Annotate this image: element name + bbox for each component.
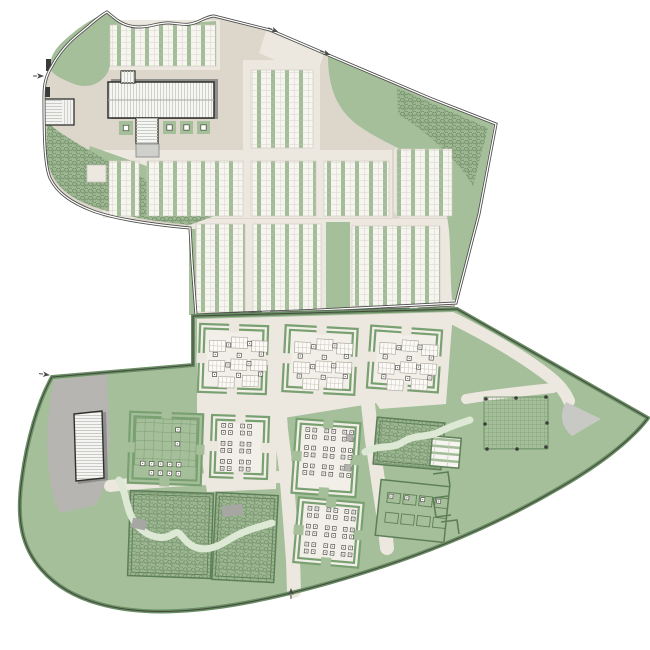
wall-opening-south bbox=[159, 476, 169, 486]
court-c2 bbox=[289, 416, 363, 500]
court-n-interior bbox=[282, 325, 357, 395]
plot-block-small-interior bbox=[430, 436, 462, 468]
tree-dot bbox=[485, 447, 489, 451]
court-c1 bbox=[207, 412, 271, 481]
plot-block-small bbox=[430, 436, 462, 468]
gate-arrow-west-lower bbox=[39, 371, 51, 378]
burial-plot-rows-block bbox=[251, 161, 316, 216]
green-band bbox=[326, 222, 350, 312]
gate-arrow-west-lower-head bbox=[43, 371, 51, 377]
wall-opening-south bbox=[233, 470, 243, 480]
wall-opening-north bbox=[235, 413, 245, 423]
chapel-wing-stairs bbox=[136, 118, 158, 144]
wall-opening-west bbox=[196, 353, 206, 363]
wall-opening-south bbox=[318, 487, 329, 498]
tree-grid-square bbox=[484, 397, 548, 449]
burial-plot-rows-block bbox=[109, 161, 139, 216]
gray-plinth bbox=[344, 464, 351, 471]
barn-roof-hatch bbox=[74, 411, 104, 481]
site-plan-page bbox=[0, 0, 650, 650]
wall-opening-west bbox=[293, 524, 304, 535]
court-grid bbox=[125, 409, 206, 488]
wall-opening-north bbox=[229, 322, 239, 332]
tree-symbol bbox=[184, 125, 189, 130]
chapel-apron bbox=[136, 144, 159, 157]
gray-plinth bbox=[346, 434, 353, 441]
tree-dot bbox=[484, 397, 488, 401]
burial-plot-rows-block bbox=[324, 161, 389, 216]
burial-plot-rows-block bbox=[110, 25, 216, 66]
court-nw bbox=[195, 321, 271, 397]
hedge-block-s bbox=[212, 492, 278, 582]
wall-opening-north bbox=[316, 324, 327, 335]
wall-opening-north bbox=[326, 497, 337, 508]
wall-opening-east bbox=[353, 530, 364, 541]
burial-plot-rows-block bbox=[196, 224, 245, 312]
tree-dot bbox=[514, 396, 518, 400]
wall-opening-west bbox=[291, 451, 302, 462]
burial-plot-rows-block bbox=[147, 161, 243, 216]
burial-plot-rows-block bbox=[352, 226, 440, 306]
wall-opening-west bbox=[208, 441, 218, 451]
gate-arrow-west-upper-head bbox=[37, 73, 44, 78]
tree-dot bbox=[483, 422, 487, 426]
site-plan-drawing bbox=[0, 0, 650, 650]
court-plots bbox=[375, 480, 449, 543]
court-ne bbox=[364, 323, 444, 395]
burial-plot-rows-block bbox=[253, 224, 321, 312]
wall-opening-west bbox=[366, 351, 377, 362]
stream-culvert-mid bbox=[222, 504, 244, 517]
wall-opening-west bbox=[281, 353, 292, 364]
hedge-block-s-interior bbox=[212, 492, 278, 582]
tree-symbol bbox=[167, 125, 172, 130]
tree-symbol bbox=[123, 125, 128, 130]
court-n bbox=[280, 323, 361, 398]
court-plots-interior bbox=[375, 480, 449, 543]
gatehouse-steps bbox=[45, 100, 62, 124]
tree-dot bbox=[544, 445, 548, 449]
court-s bbox=[291, 495, 367, 571]
tree-dot bbox=[544, 395, 548, 399]
gate-arrow-west-lower-stem bbox=[39, 374, 43, 375]
tree-dot bbox=[545, 421, 549, 425]
wall-opening-south bbox=[320, 557, 331, 568]
tree-dot bbox=[515, 447, 519, 451]
wall-opening-east bbox=[260, 443, 270, 453]
wall-opening-north bbox=[401, 325, 412, 336]
gatehouse-roof bbox=[62, 100, 73, 124]
wall-opening-north bbox=[323, 418, 334, 429]
pergola-grid bbox=[134, 418, 197, 467]
tree-symbol bbox=[201, 125, 206, 130]
chapel-annex-hatch bbox=[121, 71, 135, 83]
burial-plot-rows-block bbox=[397, 149, 452, 216]
burial-plot-rows-block bbox=[251, 70, 313, 148]
terrace-platform bbox=[87, 165, 106, 182]
gate-arrow-west-upper bbox=[33, 73, 44, 78]
